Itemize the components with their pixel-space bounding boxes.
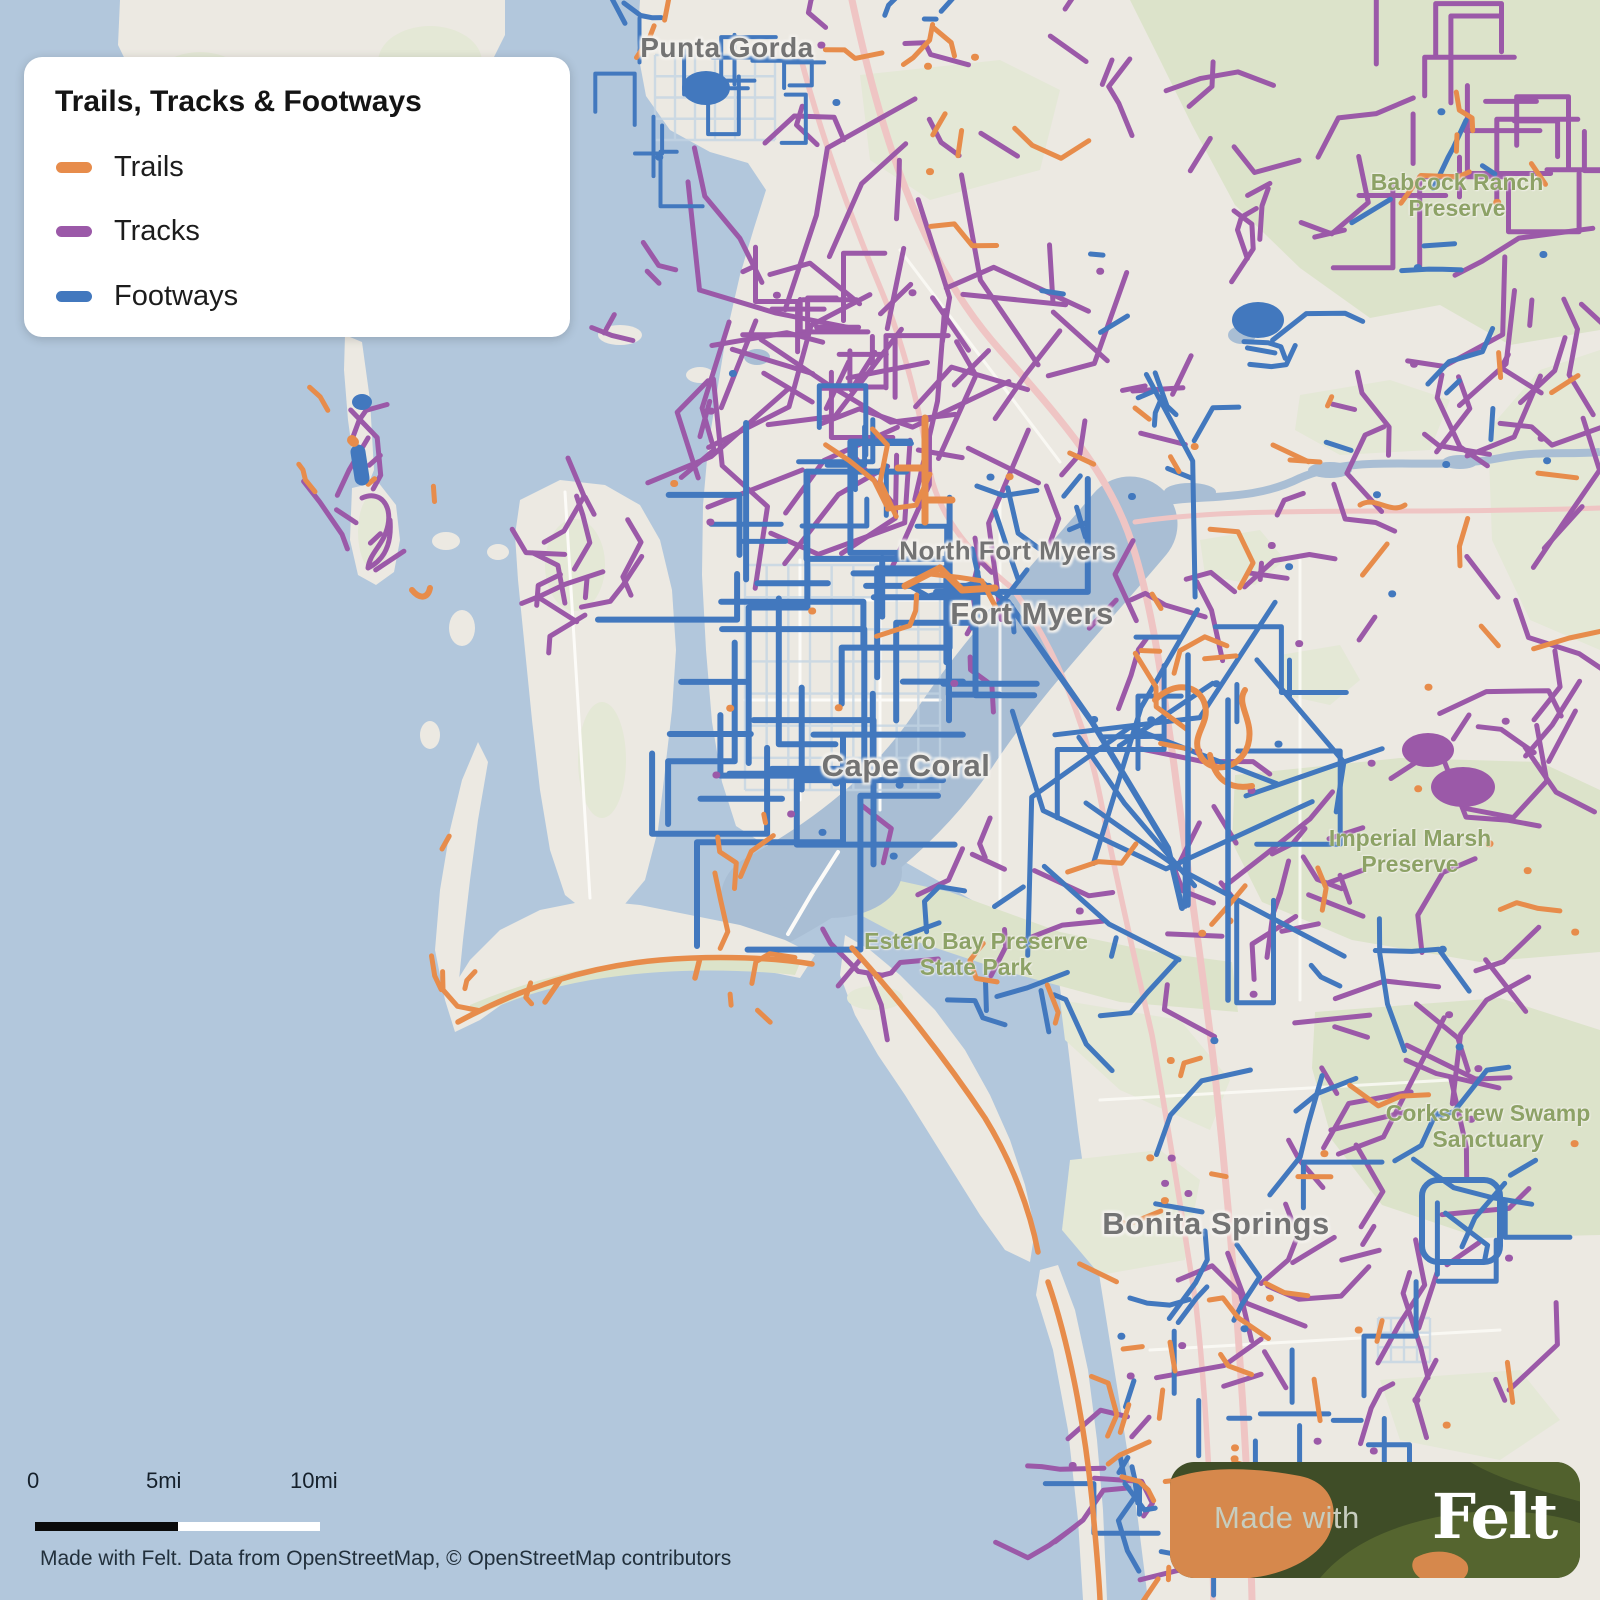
scale-tick-end: 10mi	[290, 1468, 338, 1494]
trails-swatch-icon	[56, 162, 92, 173]
legend-item-trails[interactable]: Trails	[24, 147, 570, 187]
tracks-swatch-icon	[56, 226, 92, 237]
area-label-babcock-ranch: Babcock Ranch Preserve	[1371, 169, 1544, 221]
legend-item-label: Trails	[114, 151, 184, 184]
city-label-punta-gorda: Punta Gorda	[640, 32, 814, 64]
city-label-north-fort-myers: North Fort Myers	[899, 536, 1116, 567]
city-label-fort-myers: Fort Myers	[950, 596, 1113, 632]
legend-item-footways[interactable]: Footways	[24, 276, 570, 316]
scale-tick-mid: 5mi	[146, 1468, 181, 1494]
made-with-felt-badge[interactable]: Made with Felt	[1170, 1462, 1580, 1578]
badge-prefix-text: Made with	[1214, 1500, 1360, 1536]
scale-tick-start: 0	[27, 1468, 39, 1494]
scale-bar-segment-black	[35, 1522, 178, 1531]
legend-item-label: Footways	[114, 280, 238, 313]
area-label-corkscrew-swamp: Corkscrew Swamp Sanctuary	[1386, 1100, 1591, 1152]
city-label-cape-coral: Cape Coral	[822, 748, 991, 784]
area-label-estero-bay: Estero Bay Preserve State Park	[864, 928, 1088, 980]
scale-bar-segment-white	[178, 1522, 320, 1531]
city-label-bonita-springs: Bonita Springs	[1102, 1206, 1329, 1242]
map-viewport: Punta Gorda North Fort Myers Fort Myers …	[0, 0, 1600, 1600]
legend-title: Trails, Tracks & Footways	[55, 85, 422, 119]
legend-card: Trails, Tracks & Footways Trails Tracks …	[24, 57, 570, 337]
area-label-imperial-marsh: Imperial Marsh Preserve	[1329, 825, 1491, 877]
footways-swatch-icon	[56, 291, 92, 302]
legend-item-tracks[interactable]: Tracks	[24, 211, 570, 251]
attribution-text: Made with Felt. Data from OpenStreetMap,…	[40, 1547, 731, 1571]
legend-item-label: Tracks	[114, 215, 200, 248]
felt-logo: Felt	[1432, 1480, 1556, 1553]
